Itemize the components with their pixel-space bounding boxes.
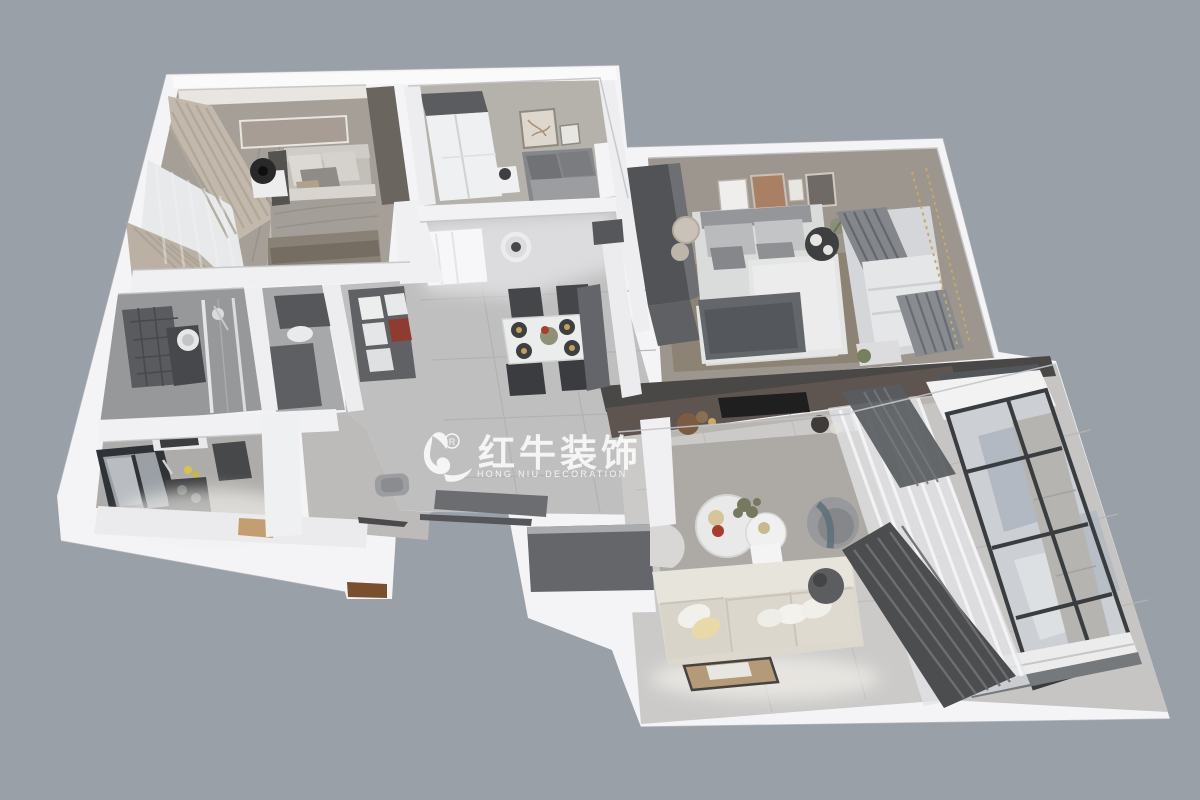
svg-text:R: R <box>449 437 456 447</box>
svg-text:HONG NIU DECORATION: HONG NIU DECORATION <box>477 469 628 479</box>
svg-text:红牛装饰: 红牛装饰 <box>478 433 642 474</box>
